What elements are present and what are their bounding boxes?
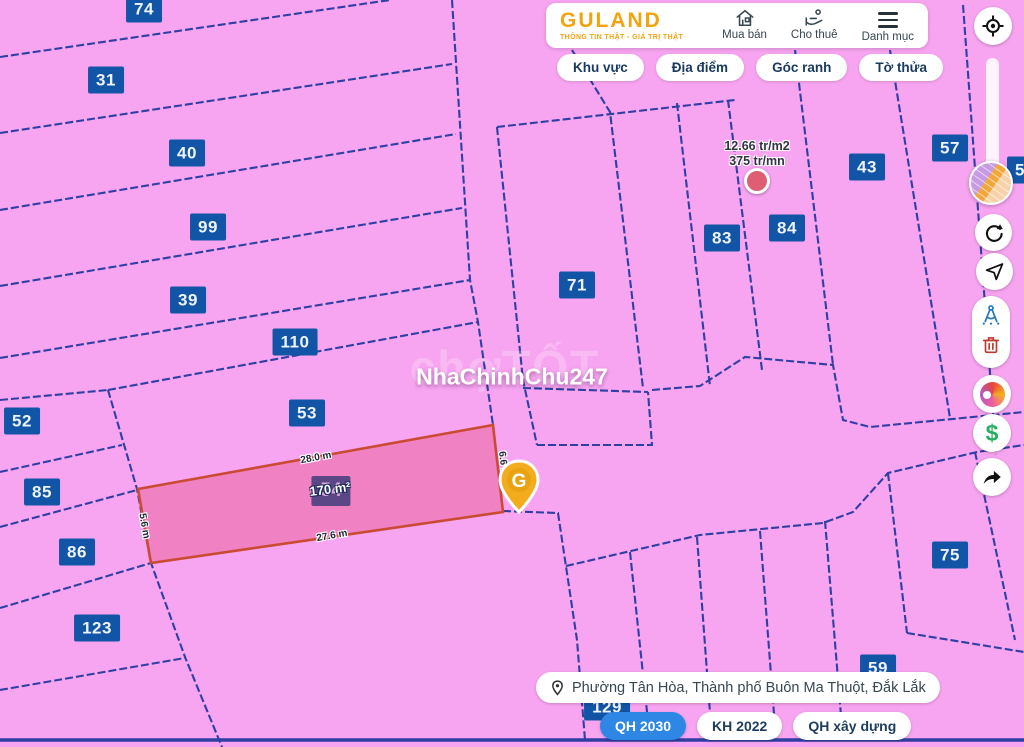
parcel-boundary-line bbox=[0, 490, 137, 527]
nav-danh-muc[interactable]: Danh mục bbox=[862, 8, 914, 43]
parcel-number-85[interactable]: 85 bbox=[24, 479, 60, 506]
share-arrow-icon bbox=[980, 465, 1004, 489]
price-layer-button[interactable]: $ bbox=[973, 414, 1011, 452]
brand-tagline: THÔNG TIN THẬT - GIÁ TRỊ THẬT bbox=[560, 34, 683, 41]
address-text: Phường Tân Hòa, Thành phố Buôn Ma Thuột,… bbox=[572, 680, 926, 696]
delete-button[interactable] bbox=[980, 334, 1002, 361]
nav-cho-thue[interactable]: Cho thuê bbox=[791, 8, 838, 43]
brand[interactable]: GULAND THÔNG TIN THẬT - GIÁ TRỊ THẬT bbox=[560, 10, 683, 41]
parcel-boundary-line bbox=[825, 521, 843, 740]
parcel-boundary-line bbox=[503, 511, 585, 740]
parcel-boundary-line bbox=[0, 134, 456, 210]
navigation-arrow-icon bbox=[984, 261, 1005, 282]
parcel-boundary-line bbox=[0, 658, 185, 690]
parcel-number-123[interactable]: 123 bbox=[74, 615, 120, 642]
filter-pill-khu-vực[interactable]: Khu vực bbox=[557, 54, 644, 81]
plan-button-kh-2022[interactable]: KH 2022 bbox=[697, 712, 782, 740]
plan-button-qh-2030[interactable]: QH 2030 bbox=[600, 712, 686, 740]
palette-icon bbox=[980, 382, 1005, 407]
parcel-boundary-line bbox=[537, 392, 652, 445]
filter-pill-góc-ranh[interactable]: Góc ranh bbox=[756, 54, 847, 81]
measure-button[interactable] bbox=[979, 303, 1003, 332]
parcel-number-43[interactable]: 43 bbox=[849, 154, 885, 181]
parcel-number-74[interactable]: 74 bbox=[126, 0, 162, 23]
house-search-icon bbox=[734, 8, 756, 28]
guland-map-pin[interactable]: G bbox=[496, 459, 542, 520]
locate-button[interactable] bbox=[974, 7, 1012, 45]
parcel-number-110[interactable]: 110 bbox=[273, 329, 318, 356]
parcel-number-99[interactable]: 99 bbox=[190, 214, 226, 241]
parcel-number-39[interactable]: 39 bbox=[170, 287, 206, 314]
watermark-text: NhaChinhChu247 bbox=[416, 364, 608, 391]
filter-pill-tờ-thửa[interactable]: Tờ thửa bbox=[859, 54, 943, 81]
parcel-number-53[interactable]: 53 bbox=[289, 400, 325, 427]
plan-button-qh-xây-dựng[interactable]: QH xây dựng bbox=[793, 712, 911, 740]
parcel-boundary-line bbox=[0, 563, 151, 608]
parcel-boundary-line bbox=[0, 0, 390, 57]
nav-label: Mua bán bbox=[722, 29, 767, 41]
parcel-number-57[interactable]: 57 bbox=[932, 135, 968, 162]
hand-building-icon bbox=[803, 8, 825, 28]
parcel-boundary-line bbox=[907, 633, 1024, 652]
parcel-number-31[interactable]: 31 bbox=[88, 67, 124, 94]
price-per-m2: 12.66 tr/m2 bbox=[724, 139, 789, 153]
navigate-button[interactable] bbox=[976, 253, 1013, 290]
parcel-boundary-line bbox=[572, 50, 643, 388]
parcel-number-71[interactable]: 71 bbox=[559, 272, 595, 299]
refresh-icon bbox=[983, 222, 1005, 244]
compass-icon bbox=[979, 303, 1003, 327]
menu-icon bbox=[878, 8, 898, 30]
parcel-boundary-line bbox=[497, 100, 735, 127]
parcel-number-84[interactable]: 84 bbox=[769, 215, 805, 242]
parcel-boundary-line bbox=[0, 64, 452, 133]
trash-icon bbox=[980, 334, 1002, 356]
price-per-lot: 375 tr/mn bbox=[729, 154, 785, 168]
parcel-number-83[interactable]: 83 bbox=[704, 225, 740, 252]
parcel-boundary-line bbox=[760, 531, 776, 740]
parcel-boundary-line bbox=[0, 445, 122, 472]
crosshair-icon bbox=[981, 14, 1005, 38]
pin-icon: G bbox=[496, 459, 542, 515]
map-stage: 7431409939110535285861237183844357575591… bbox=[0, 0, 1024, 747]
dollar-icon: $ bbox=[986, 420, 999, 447]
nav-label: Cho thuê bbox=[791, 29, 838, 41]
parcel-boundary-line bbox=[697, 537, 712, 740]
parcel-number-40[interactable]: 40 bbox=[169, 140, 205, 167]
parcel-boundary-line bbox=[108, 390, 222, 747]
parcel-boundary-line bbox=[0, 390, 108, 400]
parcel-boundary-line bbox=[888, 473, 907, 633]
plan-toggle-bar: QH 2030KH 2022QH xây dựng bbox=[600, 712, 911, 740]
parcel-boundary-line bbox=[0, 280, 470, 358]
filter-pill-địa-điểm[interactable]: Địa điểm bbox=[656, 54, 744, 81]
parcel-number-52[interactable]: 52 bbox=[4, 408, 40, 435]
map-style-thumbnail[interactable] bbox=[969, 161, 1013, 205]
parcel-number-86[interactable]: 86 bbox=[59, 539, 95, 566]
brand-logo: GULAND bbox=[560, 10, 683, 31]
svg-text:G: G bbox=[512, 471, 527, 492]
measure-tools-pill bbox=[972, 296, 1010, 368]
header-card: GULAND THÔNG TIN THẬT - GIÁ TRỊ THẬT Mua… bbox=[546, 3, 928, 48]
price-marker-dot[interactable] bbox=[744, 168, 770, 194]
map-filter-bar: Khu vựcĐịa điểmGóc ranhTờ thửa bbox=[557, 54, 943, 81]
parcel-boundary-line bbox=[795, 50, 833, 365]
parcel-boundary-line bbox=[890, 50, 950, 418]
header-nav: Mua bán Cho thuê Danh mục bbox=[722, 8, 914, 43]
location-pin-icon bbox=[550, 679, 565, 697]
refresh-button[interactable] bbox=[975, 214, 1012, 251]
share-button[interactable] bbox=[973, 458, 1011, 496]
parcel-boundary-line bbox=[0, 208, 462, 286]
nav-mua-ban[interactable]: Mua bán bbox=[722, 8, 767, 43]
parcel-boundary-line bbox=[497, 127, 537, 445]
address-pill[interactable]: Phường Tân Hòa, Thành phố Buôn Ma Thuột,… bbox=[536, 672, 940, 703]
parcel-number-75[interactable]: 75 bbox=[932, 542, 968, 569]
map-colors-button[interactable] bbox=[973, 375, 1011, 413]
nav-label: Danh mục bbox=[862, 31, 914, 43]
